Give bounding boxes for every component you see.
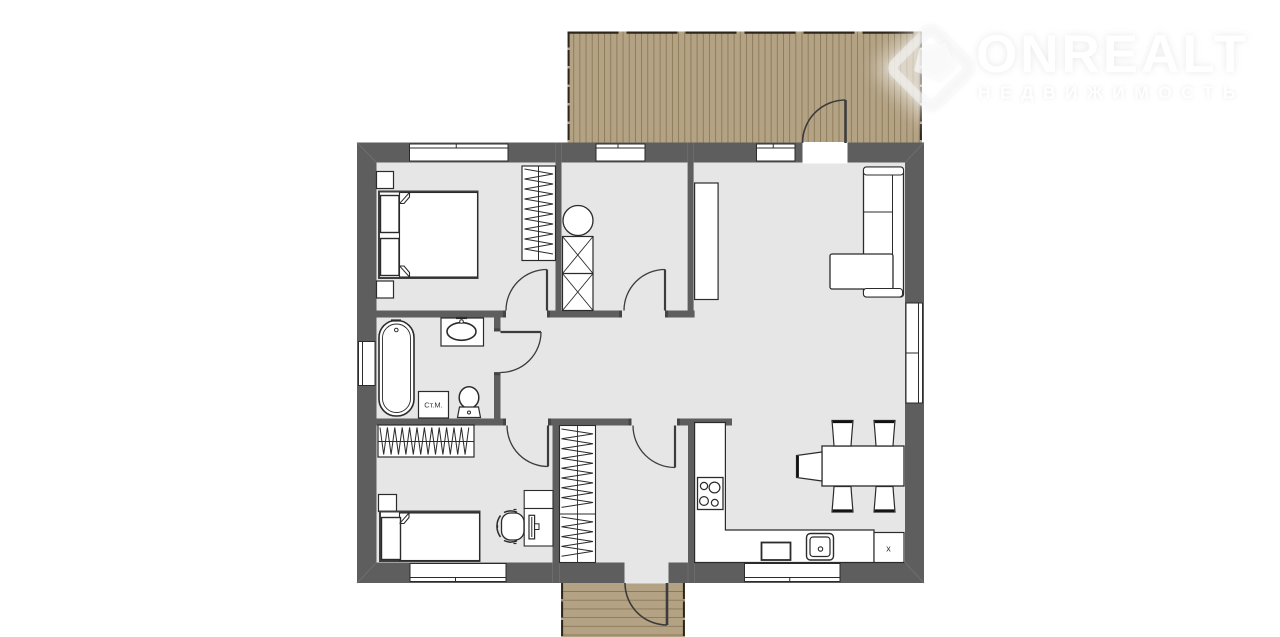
svg-text:НЕДВИЖИМОСТЬ: НЕДВИЖИМОСТЬ (978, 83, 1245, 103)
svg-text:x: x (886, 544, 891, 554)
svg-text:ONREALT: ONREALT (976, 25, 1249, 84)
svg-text:Ст.М.: Ст.М. (424, 401, 442, 410)
